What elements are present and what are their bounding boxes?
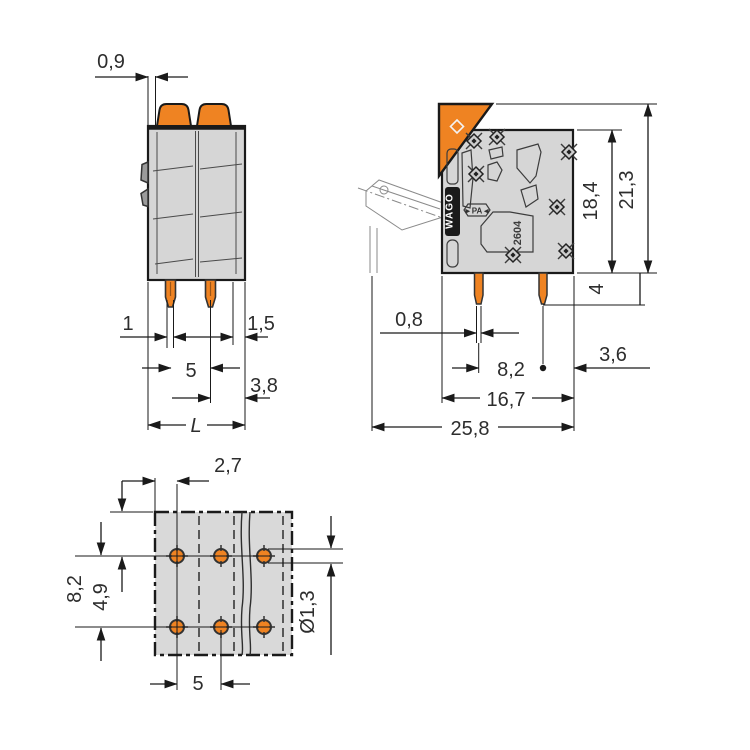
dim-label-side-pin-to-edge: 3,6 [599,344,627,366]
footprint-view: 2,7 4,9 8,2 5 Ø1,3 [64,455,343,695]
push-button-1 [157,104,191,126]
dim-label-pin-thickness: 0,8 [395,309,423,331]
dimension-side-depth: 16,7 [442,389,574,411]
dim-label-edge-to-pin: 2,7 [214,455,242,477]
dim-label-edge-to-row: 4,9 [90,583,112,611]
latch-tab-lower [141,189,148,207]
push-button-2 [197,104,231,126]
dim-label-front-pin-width: 1 [122,313,133,335]
dimension-side-housing-height: 18,4 [580,130,612,273]
dimension-side-pin-length: 4 [586,273,640,305]
dimension-side-row-spacing: 8,2 [452,359,546,381]
dim-label-footprint-pitch: 5 [192,673,203,695]
solder-pin-side-2 [539,273,547,304]
dim-label-front-wall: 0,9 [97,51,125,73]
series-number-text: 2604 [512,220,524,245]
dim-label-row-spacing: 8,2 [497,359,525,381]
wago-logo: WAGO [445,187,461,236]
dim-label-front-length: L [190,415,201,437]
front-view: 0,9 1 1,5 5 3,8 L [95,51,278,437]
dimension-footprint-edge-to-row: 4,9 [90,481,122,611]
material-badge-text: ►PA◄ [464,207,490,216]
front-housing-body [148,126,245,280]
terminal-block-drawing: 0,9 1 1,5 5 3,8 L [0,0,750,750]
dim-label-front-pitch: 5 [185,360,196,382]
dimension-front-right-wall: 1,5 [196,313,275,337]
dimension-front-length: L [148,415,245,437]
dim-label-depth: 16,7 [487,389,526,411]
dim-label-hole-diameter: Ø1,3 [297,590,319,633]
ghost-lever-outline [358,180,454,273]
dimension-footprint-edge-to-pin: 2,7 [122,455,242,481]
wago-logo-text: WAGO [445,193,456,229]
dim-label-front-right-wall: 1,5 [247,313,275,335]
solder-pin-side-1 [475,273,484,304]
latch-tab-upper [141,162,148,183]
dim-label-overall-height: 21,3 [616,171,638,210]
dimension-front-pitch: 5 [142,360,240,382]
dimension-side-overall-height: 21,3 [616,104,648,273]
dim-label-housing-height: 18,4 [580,182,602,221]
dim-label-pin-length: 4 [586,283,608,294]
dimension-front-wall: 0,9 [95,51,188,77]
material-badge: ►PA◄ [464,204,490,216]
dimension-side-overall-depth: 25,8 [372,418,574,440]
dim-label-footprint-row-spacing: 8,2 [64,575,86,603]
dim-label-front-pin-to-edge: 3,8 [250,375,278,397]
dimension-side-pin-to-edge: 3,6 [574,344,650,368]
dim-label-overall-depth: 25,8 [451,418,490,440]
dimension-side-pin-thickness: 0,8 [380,309,519,333]
dimension-footprint-hole-diameter: Ø1,3 [297,516,331,655]
side-view: WAGO ►PA◄ 2604 [358,104,657,440]
technical-drawing-page: 0,9 1 1,5 5 3,8 L [0,0,750,750]
dimension-footprint-pitch: 5 [150,673,250,695]
dimension-front-pin-width: 1 [120,313,196,337]
